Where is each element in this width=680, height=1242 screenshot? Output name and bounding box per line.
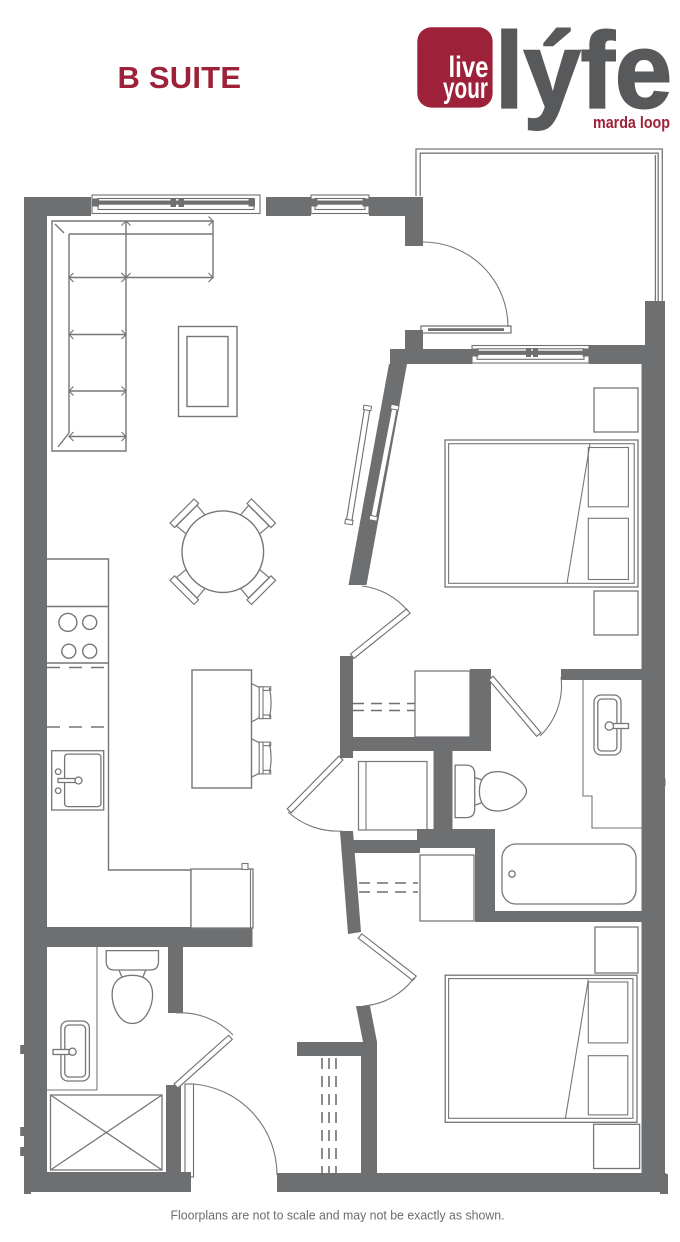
svg-text:your: your (443, 72, 488, 105)
svg-text:Floorplans are not to scale an: Floorplans are not to scale and may not … (171, 1208, 505, 1223)
svg-text:lýfe: lýfe (495, 10, 672, 131)
svg-text:B SUITE: B SUITE (118, 60, 242, 95)
svg-text:marda loop: marda loop (593, 114, 670, 132)
